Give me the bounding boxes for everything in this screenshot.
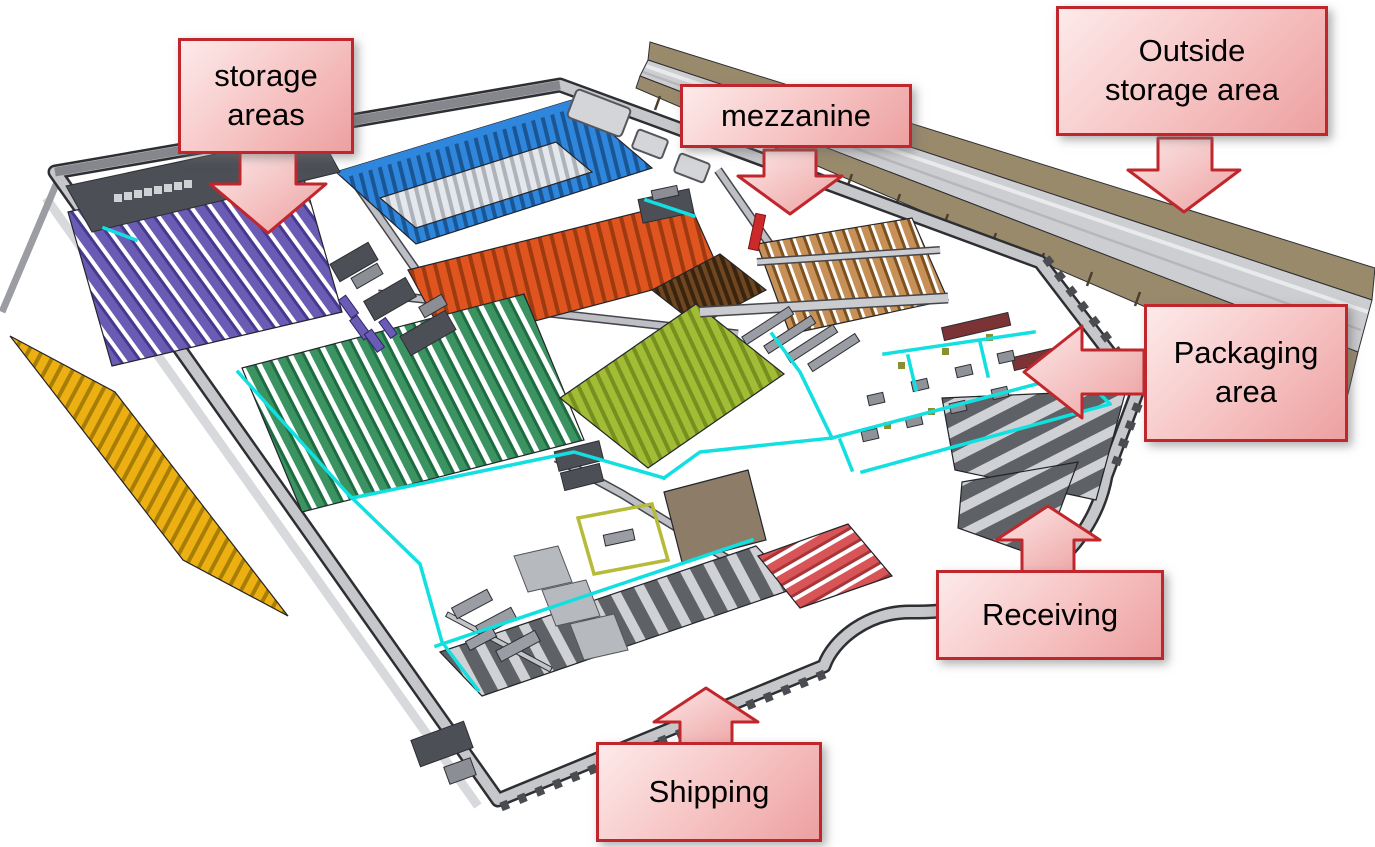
warehouse-layout-figure: storage areas mezzanine Outside storage … [0, 0, 1375, 847]
callout-line: Outside [1139, 32, 1246, 71]
callout-line: storage [214, 57, 317, 96]
callout-line: areas [227, 96, 305, 135]
callout-line: Receiving [982, 596, 1118, 635]
callout-line: mezzanine [721, 97, 871, 136]
callout-line: Shipping [649, 773, 770, 812]
callout-line: Packaging [1174, 334, 1319, 373]
callout-packaging-area: Packaging area [1144, 304, 1348, 442]
callout-receiving: Receiving [936, 570, 1164, 660]
callout-mezzanine: mezzanine [680, 84, 912, 148]
callout-shipping: Shipping [596, 742, 822, 842]
callout-storage-areas: storage areas [178, 38, 354, 154]
callout-line: storage area [1105, 71, 1279, 110]
callout-line: area [1215, 373, 1277, 412]
callout-outside-storage-area: Outside storage area [1056, 6, 1328, 136]
